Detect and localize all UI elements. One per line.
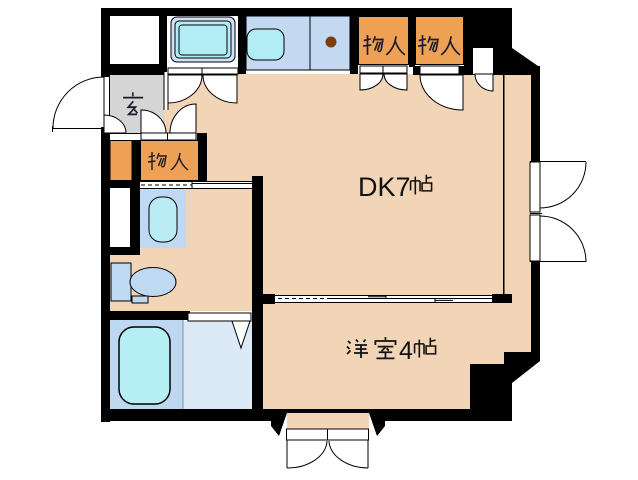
- svg-text:DK7: DK7: [358, 172, 411, 202]
- svg-text:4: 4: [399, 337, 413, 365]
